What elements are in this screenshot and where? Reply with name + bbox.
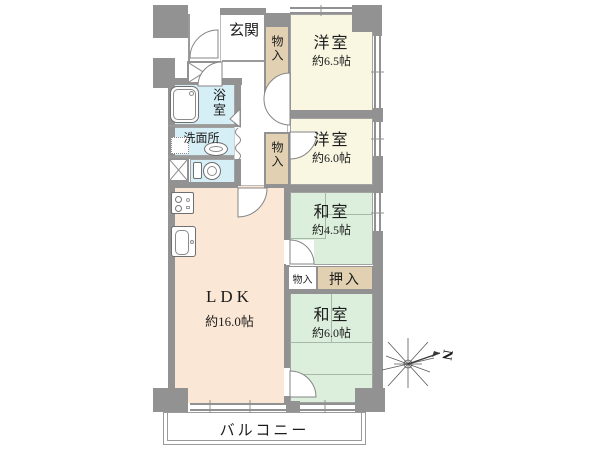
label-ldk-area: 約16.0帖 — [175, 311, 284, 330]
label-japanese-45: 和室 — [290, 198, 373, 222]
room-porch — [188, 14, 220, 62]
label-closet-mid: 物入 — [269, 141, 286, 169]
wall-segment — [373, 156, 383, 193]
label-western-65: 洋室 — [290, 29, 373, 53]
wall-segment — [168, 182, 238, 188]
label-balcony: バルコニー — [163, 419, 366, 440]
north-label: N — [438, 349, 455, 362]
window — [290, 7, 352, 14]
pipe-shaft-icon — [187, 61, 221, 84]
pipe-shaft-icon — [168, 158, 189, 182]
tatami-line — [290, 238, 326, 239]
label-western-65-area: 約6.5帖 — [290, 52, 373, 69]
label-ldk: LDK — [175, 287, 284, 307]
kitchen-sink-icon — [171, 226, 196, 257]
genkan-step-line — [222, 60, 266, 62]
toilet-icon — [203, 162, 221, 180]
wall-segment — [373, 27, 382, 36]
wall-segment — [373, 108, 383, 122]
wall-segment — [153, 5, 188, 38]
label-japanese-45-area: 約4.5帖 — [290, 221, 373, 238]
x-mark-icon — [170, 160, 187, 180]
label-western-60: 洋室 — [290, 126, 373, 150]
label-closet-small: 物入 — [288, 271, 317, 286]
label-genkan: 玄関 — [222, 19, 266, 40]
wall-line — [188, 14, 190, 62]
wall-line — [168, 125, 235, 127]
tatami-line — [290, 374, 373, 375]
compass-icon: N — [374, 330, 466, 396]
label-japanese-60: 和室 — [290, 301, 373, 325]
wall-segment — [284, 185, 374, 192]
stove-icon — [171, 192, 194, 214]
window — [374, 36, 381, 108]
wall-segment — [235, 78, 241, 186]
wall-segment — [284, 110, 374, 118]
compass-star — [382, 338, 434, 388]
toilet-icon — [193, 162, 202, 179]
wall-segment — [220, 8, 266, 15]
label-japanese-60-area: 約6.0帖 — [290, 324, 373, 341]
wall-segment — [287, 290, 373, 294]
tatami-line — [290, 342, 373, 343]
window — [374, 122, 381, 156]
window — [190, 403, 286, 411]
window — [300, 403, 355, 411]
window — [374, 193, 381, 231]
wall-segment — [286, 401, 300, 412]
label-washroom: 洗面所 — [168, 129, 235, 146]
label-western-60-area: 約6.0帖 — [290, 149, 373, 166]
wall-segment — [153, 58, 169, 88]
label-closet-top: 物入 — [269, 35, 286, 63]
label-oshiire: 押入 — [317, 269, 373, 289]
bathtub-icon — [170, 86, 199, 123]
x-mark-icon — [189, 63, 219, 82]
vestibule — [286, 240, 314, 265]
label-bath: 浴室 — [209, 88, 228, 118]
floor-plan: N 玄関 物入 洋室 約6.5帖 洋室 約6.0帖 浴室 洗面所 物入 和室 約… — [0, 0, 600, 450]
